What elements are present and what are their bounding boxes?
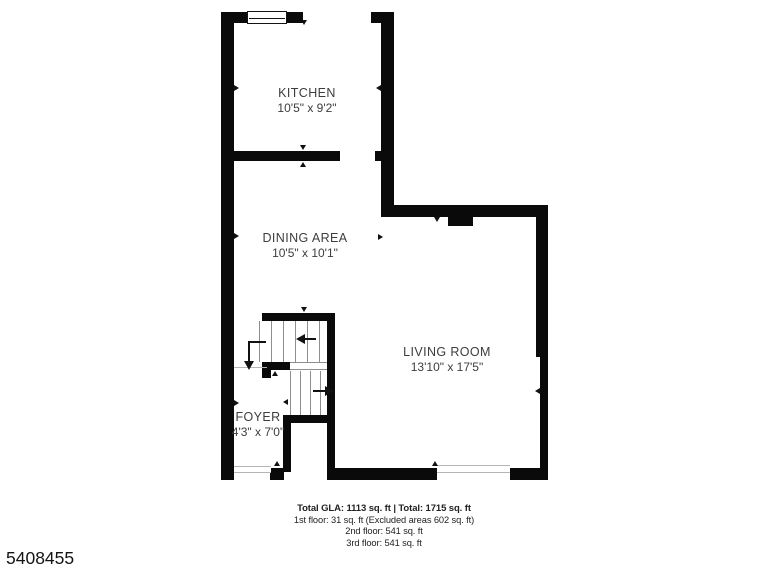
triangle-marker-icon — [274, 461, 280, 466]
stair-down-arrow-icon — [244, 361, 254, 370]
wall-bottom-left-segment — [335, 468, 437, 480]
stair-tread — [319, 321, 320, 362]
wall-foyer-bottom-stub — [270, 468, 284, 480]
triangle-marker-icon — [301, 307, 307, 312]
stair-landing-line — [290, 362, 327, 363]
room-dimensions: 10'5" x 10'1" — [263, 246, 348, 260]
stair-tread — [320, 371, 321, 415]
triangle-marker-icon — [434, 217, 440, 222]
room-dimensions: 10'5" x 9'2" — [277, 101, 336, 115]
window-living-icon — [437, 465, 510, 473]
window-foyer-icon — [234, 466, 271, 473]
wall-stair-top — [262, 313, 335, 321]
triangle-marker-icon — [272, 371, 278, 376]
wall-living-north — [381, 205, 548, 217]
room-dimensions: 4'3" x 7'0" — [232, 425, 284, 439]
total-gla-line: Total GLA: 1113 sq. ft | Total: 1715 sq.… — [0, 503, 768, 515]
stair-tread — [307, 321, 308, 362]
wall-stair-right — [327, 313, 335, 480]
triangle-marker-icon — [378, 234, 383, 240]
stair-up-arrow-tail — [305, 338, 316, 340]
stair-down-arrow-tail — [248, 341, 266, 343]
stair-right-arrow-icon — [325, 386, 334, 396]
room-dimensions: 13'10" x 17'5" — [403, 360, 491, 374]
room-label-foyer: FOYER 4'3" x 7'0" — [232, 410, 284, 439]
stair-down-arrow-tail — [248, 341, 250, 362]
window-kitchen-icon — [247, 11, 287, 24]
triangle-marker-icon — [234, 85, 239, 91]
room-name: FOYER — [232, 410, 284, 424]
listing-id: 5408455 — [6, 548, 74, 569]
stair-landing-line — [290, 369, 327, 370]
area-summary: Total GLA: 1113 sq. ft | Total: 1715 sq.… — [0, 503, 768, 549]
triangle-marker-icon — [234, 233, 239, 239]
room-label-dining-area: DINING AREA 10'5" x 10'1" — [263, 231, 348, 260]
stair-tread — [283, 321, 284, 362]
wall-right-upper — [536, 205, 548, 357]
wall-north-bump — [448, 217, 473, 226]
wall-bottom-right-segment — [510, 468, 548, 480]
room-label-living-room: LIVING ROOM 13'10" x 17'5" — [403, 345, 491, 374]
wall-top-left — [221, 12, 247, 23]
floor-area-line-2: 2nd floor: 541 sq. ft — [0, 526, 768, 537]
floor-area-line-1: 1st floor: 31 sq. ft (Excluded areas 602… — [0, 515, 768, 526]
triangle-marker-icon — [535, 388, 540, 394]
triangle-marker-icon — [432, 461, 438, 466]
wall-stair-landing-foot — [262, 370, 271, 378]
wall-kitchen-right — [381, 12, 394, 210]
triangle-marker-icon — [283, 399, 288, 405]
wall-kitchen-dining-divider — [221, 151, 340, 161]
wall-right-lower — [540, 357, 548, 480]
triangle-marker-icon — [234, 400, 239, 406]
stair-tread — [310, 371, 311, 415]
wall-divider-stub — [375, 151, 381, 161]
floor-area-line-3: 3rd floor: 541 sq. ft — [0, 538, 768, 549]
stair-up-arrow-icon — [296, 334, 305, 344]
stair-right-arrow-tail — [313, 390, 325, 392]
stair-tread — [300, 371, 301, 415]
triangle-marker-icon — [300, 162, 306, 167]
triangle-marker-icon — [301, 20, 307, 25]
room-name: KITCHEN — [277, 86, 336, 100]
stair-tread — [271, 321, 272, 362]
wall-stair-landing — [262, 362, 290, 370]
room-name: DINING AREA — [263, 231, 348, 245]
stair-tread — [290, 371, 291, 415]
floor-plan: KITCHEN 10'5" x 9'2" DINING AREA 10'5" x… — [0, 0, 768, 576]
room-label-kitchen: KITCHEN 10'5" x 9'2" — [277, 86, 336, 115]
triangle-marker-icon — [300, 145, 306, 150]
room-name: LIVING ROOM — [403, 345, 491, 359]
triangle-marker-icon — [376, 85, 381, 91]
